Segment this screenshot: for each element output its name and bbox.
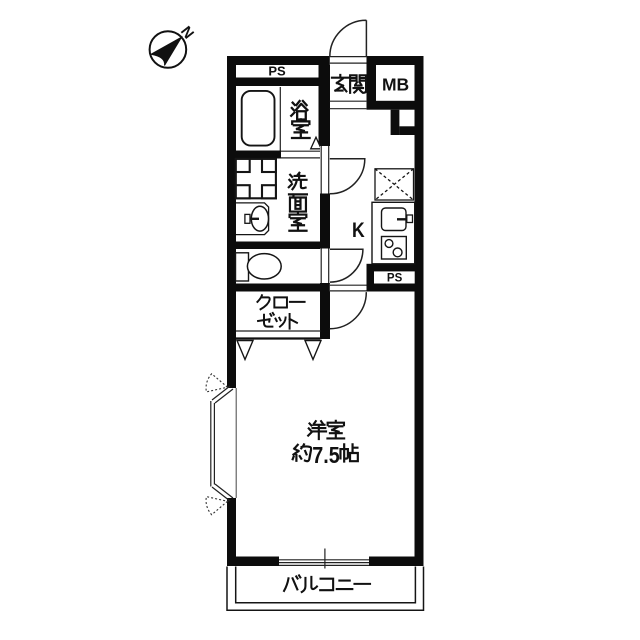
svg-text:PS: PS [387,273,403,285]
svg-text:K: K [352,219,365,243]
svg-text:MB: MB [382,74,409,94]
svg-text:7.5: 7.5 [312,442,340,468]
svg-text:PS: PS [268,64,286,79]
